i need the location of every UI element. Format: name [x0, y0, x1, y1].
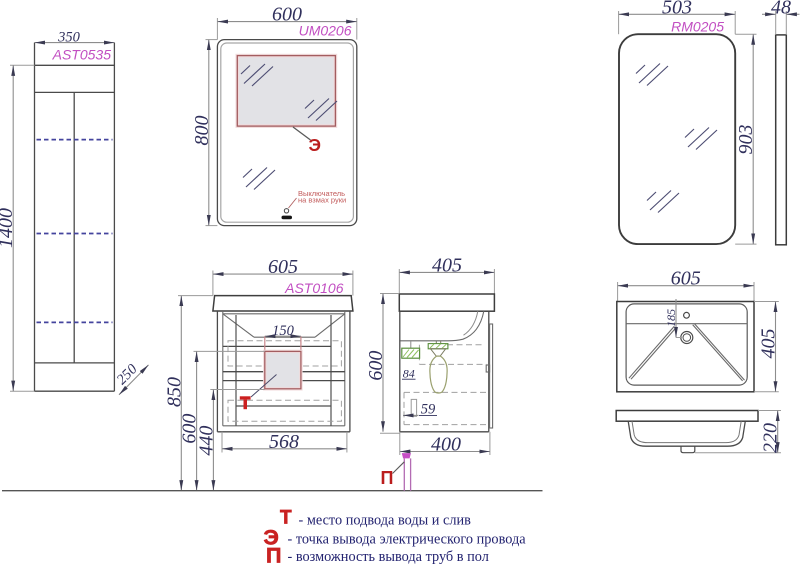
svg-text:Э: Э [309, 135, 321, 155]
svg-text:350: 350 [57, 30, 81, 46]
svg-text:AST0535: AST0535 [52, 47, 112, 63]
svg-text:48: 48 [771, 0, 791, 18]
svg-text:150: 150 [272, 323, 295, 339]
svg-text:84: 84 [403, 367, 415, 381]
svg-text:400: 400 [431, 434, 461, 456]
svg-text:405: 405 [432, 254, 462, 276]
svg-text:440: 440 [195, 426, 217, 456]
svg-text:Т: Т [280, 508, 292, 529]
svg-text:220: 220 [760, 423, 782, 453]
svg-text:405: 405 [757, 329, 779, 359]
svg-text:RM0205: RM0205 [671, 19, 724, 35]
svg-text:903: 903 [735, 125, 757, 155]
svg-text:503: 503 [662, 0, 692, 18]
svg-text:850: 850 [163, 377, 185, 407]
svg-text:П: П [266, 544, 281, 568]
svg-text:1400: 1400 [0, 208, 17, 248]
svg-text:605: 605 [268, 256, 298, 278]
svg-text:800: 800 [191, 116, 213, 146]
svg-text:600: 600 [272, 4, 302, 26]
svg-text:- точка вывода электрического: - точка вывода электрического провода [288, 532, 527, 548]
svg-text:605: 605 [671, 268, 701, 290]
svg-text:185: 185 [664, 309, 678, 327]
svg-text:600: 600 [365, 351, 387, 381]
svg-text:568: 568 [269, 431, 299, 453]
svg-text:AST0106: AST0106 [284, 280, 344, 296]
svg-text:на взмах руки: на взмах руки [298, 196, 346, 205]
svg-text:П: П [381, 468, 394, 488]
svg-text:UM0206: UM0206 [299, 23, 352, 39]
svg-text:- место подвода воды и слив: - место подвода воды и слив [299, 513, 472, 529]
svg-text:- возможность вывода труб в по: - возможность вывода труб в пол [288, 549, 489, 565]
